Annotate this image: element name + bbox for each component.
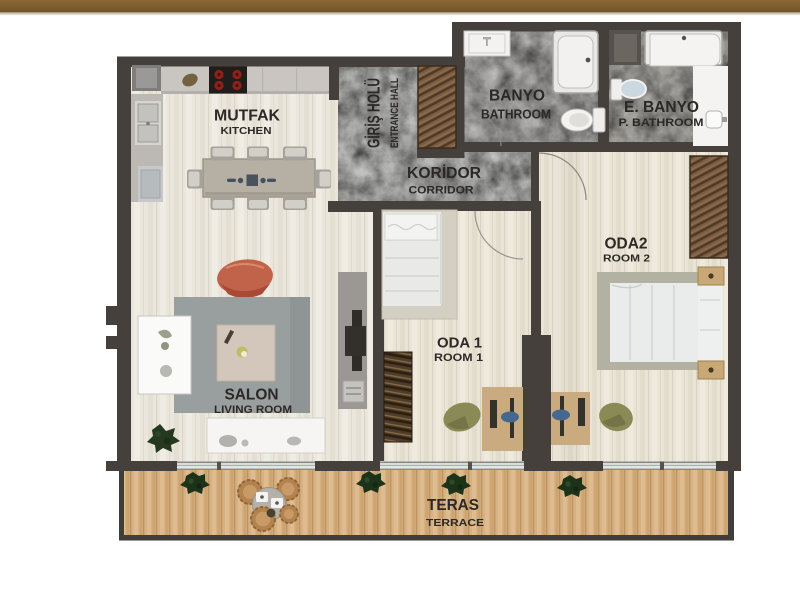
svg-text:BANYO: BANYO	[489, 88, 545, 105]
svg-text:CORRIDOR: CORRIDOR	[409, 185, 474, 197]
svg-text:KORİDOR: KORİDOR	[407, 164, 481, 182]
svg-text:ODA 1: ODA 1	[437, 335, 482, 351]
svg-text:MUTFAK: MUTFAK	[214, 108, 281, 125]
svg-text:ODA2: ODA2	[605, 235, 648, 252]
svg-text:ROOM 2: ROOM 2	[603, 254, 650, 265]
svg-text:TERAS: TERAS	[427, 497, 479, 514]
svg-text:P. BATHROOM: P. BATHROOM	[619, 117, 704, 129]
svg-text:SALON: SALON	[225, 386, 279, 403]
svg-text:BATHROOM: BATHROOM	[481, 107, 551, 122]
svg-text:ENTRANCE HALL: ENTRANCE HALL	[389, 78, 401, 148]
svg-text:LIVING ROOM: LIVING ROOM	[214, 404, 292, 416]
svg-text:TERRACE: TERRACE	[426, 518, 485, 529]
svg-text:GİRİŞ HOLÜ: GİRİŞ HOLÜ	[364, 78, 384, 148]
svg-text:KITCHEN: KITCHEN	[221, 125, 272, 137]
svg-text:E. BANYO: E. BANYO	[624, 99, 699, 116]
svg-text:ROOM 1: ROOM 1	[434, 352, 483, 364]
